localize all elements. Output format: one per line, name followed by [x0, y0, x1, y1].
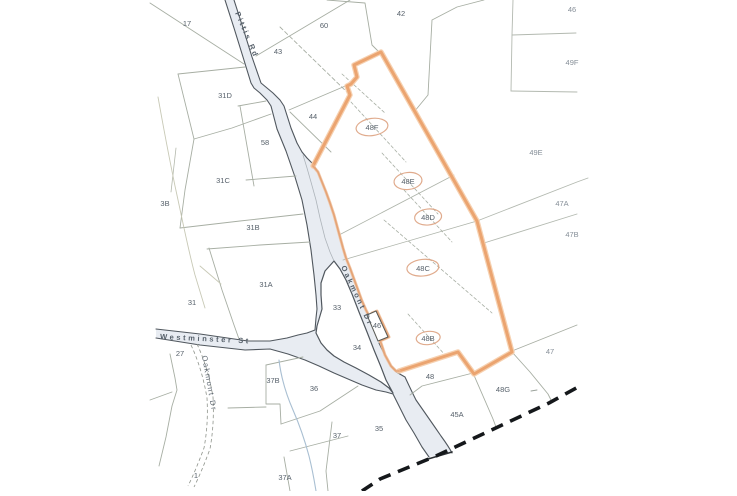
svg-text:17: 17 [183, 19, 191, 28]
svg-text:45A: 45A [450, 410, 463, 419]
svg-text:48B: 48B [421, 334, 434, 343]
svg-text:48E: 48E [401, 177, 414, 186]
svg-text:46: 46 [568, 5, 576, 14]
svg-text:36: 36 [310, 384, 318, 393]
svg-text:33: 33 [333, 303, 341, 312]
svg-text:31B: 31B [246, 223, 259, 232]
svg-text:31A: 31A [259, 280, 272, 289]
svg-text:44: 44 [309, 112, 317, 121]
svg-text:1: 1 [194, 471, 198, 480]
svg-text:48G: 48G [496, 385, 510, 394]
svg-text:48F: 48F [366, 123, 379, 132]
svg-text:58: 58 [261, 138, 269, 147]
svg-text:37A: 37A [278, 473, 291, 482]
svg-text:60: 60 [320, 21, 328, 30]
svg-text:31D: 31D [218, 91, 232, 100]
svg-text:48: 48 [426, 372, 434, 381]
svg-text:37: 37 [333, 431, 341, 440]
svg-text:42: 42 [397, 9, 405, 18]
svg-text:31: 31 [188, 298, 196, 307]
svg-text:37B: 37B [266, 376, 279, 385]
svg-text:34: 34 [353, 343, 361, 352]
svg-text:31C: 31C [216, 176, 230, 185]
svg-text:27: 27 [176, 349, 184, 358]
svg-text:48D: 48D [421, 213, 435, 222]
svg-text:49F: 49F [566, 58, 579, 67]
svg-text:35: 35 [375, 424, 383, 433]
svg-text:49E: 49E [529, 148, 542, 157]
svg-text:48C: 48C [416, 264, 430, 273]
svg-text:47: 47 [546, 347, 554, 356]
svg-text:47B: 47B [565, 230, 578, 239]
svg-text:43: 43 [274, 47, 282, 56]
svg-text:47A: 47A [555, 199, 568, 208]
svg-text:3B: 3B [160, 199, 169, 208]
